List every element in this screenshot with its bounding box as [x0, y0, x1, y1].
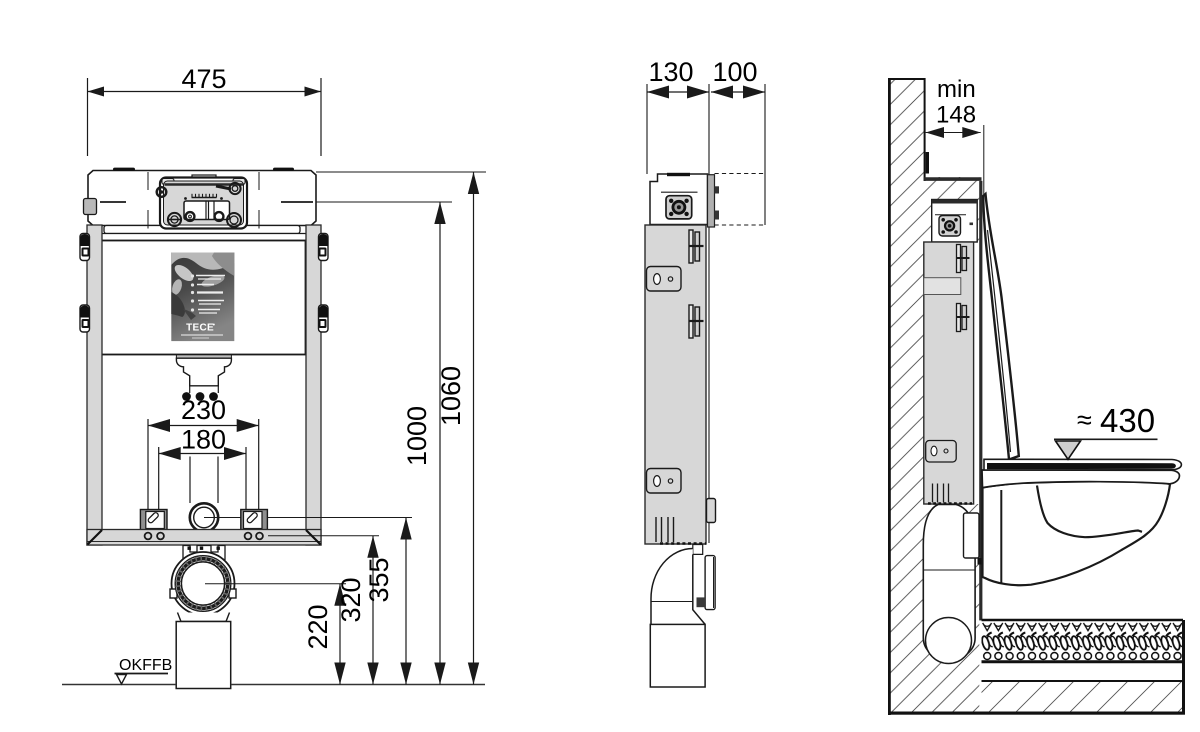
- svg-text:TECE: TECE: [186, 323, 214, 334]
- svg-text:320: 320: [336, 577, 366, 622]
- svg-text:230: 230: [181, 395, 226, 425]
- svg-text:355: 355: [364, 557, 394, 602]
- svg-text:min: min: [937, 76, 976, 103]
- svg-text:220: 220: [303, 604, 333, 649]
- svg-text:1060: 1060: [436, 366, 466, 426]
- svg-text:≈: ≈: [1077, 405, 1092, 435]
- svg-text:OKFFB: OKFFB: [119, 657, 172, 674]
- svg-text:1000: 1000: [402, 406, 432, 466]
- svg-text:100: 100: [712, 57, 757, 87]
- svg-text:148: 148: [936, 102, 976, 129]
- svg-text:130: 130: [648, 57, 693, 87]
- svg-text:475: 475: [181, 64, 226, 94]
- svg-text:430: 430: [1100, 402, 1155, 439]
- svg-text:180: 180: [181, 425, 226, 455]
